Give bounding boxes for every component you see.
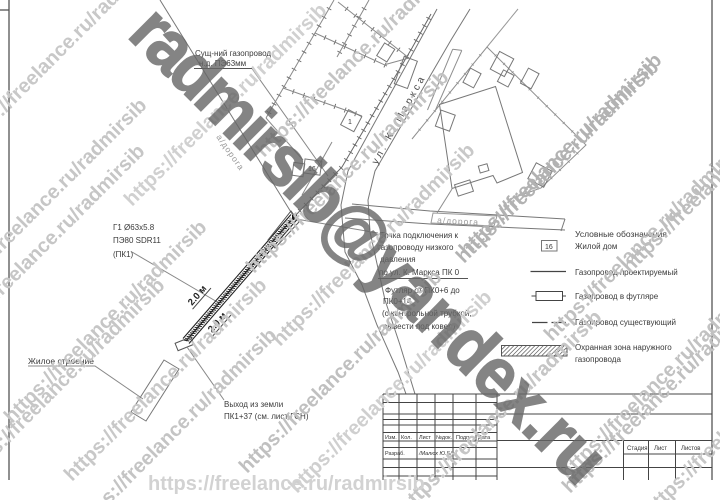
svg-text:Охранная зона наружного: Охранная зона наружного xyxy=(575,343,672,352)
svg-text:Подп.: Подп. xyxy=(456,435,471,441)
svg-text:16: 16 xyxy=(308,166,316,173)
svg-text:Газопровод существующий: Газопровод существующий xyxy=(575,318,676,327)
svg-text:Листов: Листов xyxy=(681,446,701,452)
svg-text:Жилое строение: Жилое строение xyxy=(28,356,94,366)
svg-text:Дата: Дата xyxy=(478,435,491,441)
svg-text:вывести под ковер): вывести под ковер) xyxy=(383,322,456,331)
svg-text:ул. К. Маркса: ул. К. Маркса xyxy=(370,73,429,167)
svg-text:Условные обозначения: Условные обозначения xyxy=(575,229,667,239)
svg-text:ПК1+37 (см. лист ГСН): ПК1+37 (см. лист ГСН) xyxy=(224,412,309,421)
svg-text:1: 1 xyxy=(348,119,352,126)
svg-text:Лист: Лист xyxy=(419,435,431,441)
svg-text:а/дорога: а/дорога xyxy=(437,215,479,227)
svg-text:ПК0+14: ПК0+14 xyxy=(383,297,412,306)
svg-text:Лист: Лист xyxy=(654,446,667,452)
svg-text:№док.: №док. xyxy=(436,435,453,441)
svg-text:Г1 Ø63х5.8: Г1 Ø63х5.8 xyxy=(113,223,155,232)
svg-text:Точка подключения к: Точка подключения к xyxy=(380,231,458,240)
svg-text:(с контрольной трубкой,: (с контрольной трубкой, xyxy=(382,309,472,318)
svg-text:н.д. ПЭ63мм: н.д. ПЭ63мм xyxy=(199,59,246,68)
svg-text:Газопровод в футляре: Газопровод в футляре xyxy=(575,292,659,301)
svg-text:Стадия: Стадия xyxy=(627,446,647,452)
svg-text:давления: давления xyxy=(380,255,416,264)
svg-text:газопровода: газопровода xyxy=(575,355,621,364)
svg-text:Разраб.: Разраб. xyxy=(385,451,405,457)
svg-text:по ул. К. Маркса ПК 0: по ул. К. Маркса ПК 0 xyxy=(379,268,460,277)
svg-text:Сущ-ний газопровод: Сущ-ний газопровод xyxy=(195,49,271,58)
svg-text:Футляр от ПК0+6 до: Футляр от ПК0+6 до xyxy=(385,286,460,295)
svg-text:а/дорога: а/дорога xyxy=(214,132,246,172)
svg-text:ПЭ80 SDR11: ПЭ80 SDR11 xyxy=(113,236,161,245)
svg-text:Газопровод проектируемый: Газопровод проектируемый xyxy=(575,268,678,277)
svg-text:(ПК1): (ПК1) xyxy=(113,250,134,259)
svg-text:Жилой дом: Жилой дом xyxy=(575,242,617,251)
svg-text:газопроводу низкого: газопроводу низкого xyxy=(378,243,454,252)
svg-text:Выход из земли: Выход из земли xyxy=(224,400,283,409)
svg-text:16: 16 xyxy=(545,244,553,251)
svg-text:/Малюх Ю.Б/: /Малюх Ю.Б/ xyxy=(418,451,452,457)
svg-text:Кол.: Кол. xyxy=(401,435,412,441)
svg-text:Изм.: Изм. xyxy=(385,435,397,441)
